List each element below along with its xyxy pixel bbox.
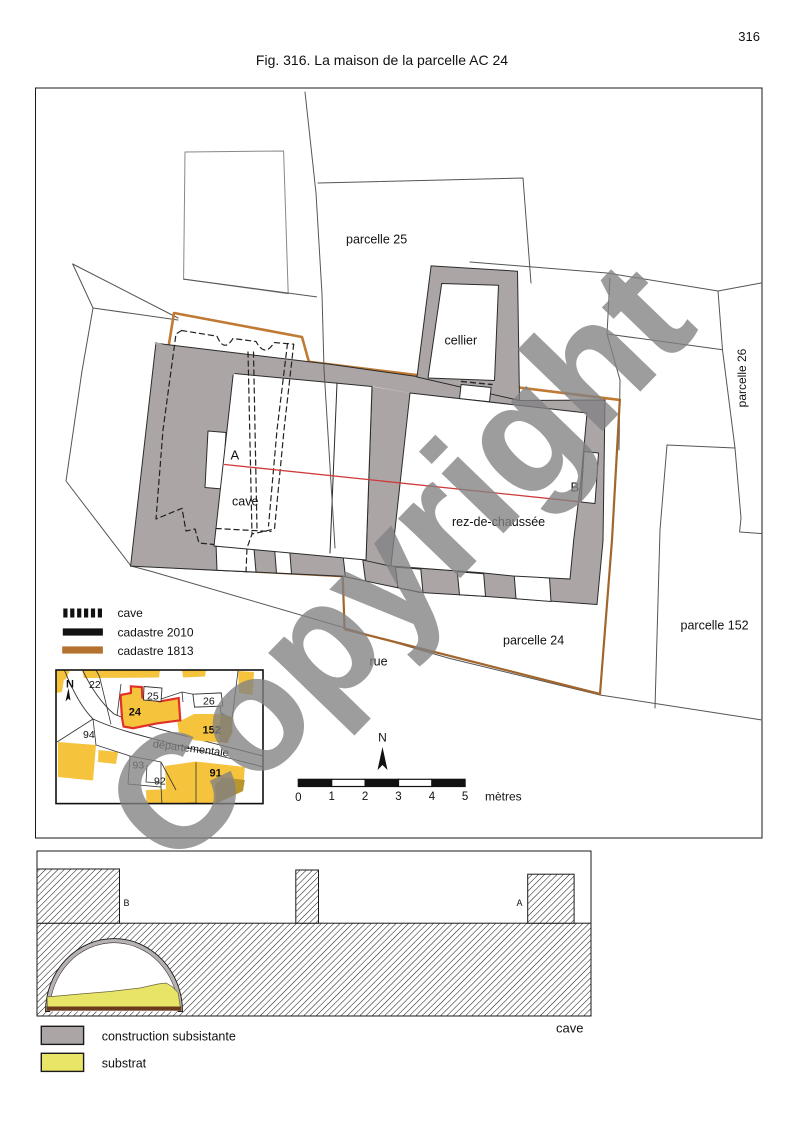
svg-text:parcelle 24: parcelle 24	[503, 634, 564, 648]
svg-text:parcelle 25: parcelle 25	[346, 233, 407, 247]
svg-text:cadastre 2010: cadastre 2010	[118, 626, 194, 640]
svg-text:22: 22	[89, 679, 101, 691]
svg-text:cave: cave	[556, 1021, 583, 1036]
svg-text:mètres: mètres	[485, 790, 522, 804]
svg-text:substrat: substrat	[102, 1057, 147, 1071]
svg-text:5: 5	[462, 791, 468, 803]
svg-text:N: N	[378, 731, 387, 745]
svg-text:parcelle 26: parcelle 26	[735, 348, 749, 407]
svg-text:Fig. 316. La maison de la parc: Fig. 316. La maison de la parcelle AC 24	[256, 52, 508, 68]
svg-text:cellier: cellier	[445, 334, 478, 348]
svg-text:cave: cave	[118, 606, 144, 620]
svg-text:A: A	[231, 448, 240, 463]
svg-text:construction subsistante: construction subsistante	[102, 1030, 236, 1044]
svg-text:parcelle 152: parcelle 152	[681, 619, 749, 633]
svg-text:1: 1	[328, 791, 334, 803]
svg-text:N: N	[66, 679, 74, 691]
svg-text:B: B	[124, 898, 130, 908]
svg-text:316: 316	[738, 29, 760, 44]
svg-text:94: 94	[83, 729, 95, 741]
svg-text:cave: cave	[232, 495, 258, 509]
svg-text:A: A	[517, 898, 523, 908]
svg-text:2: 2	[362, 791, 368, 803]
svg-text:4: 4	[429, 791, 436, 803]
svg-text:3: 3	[395, 791, 401, 803]
